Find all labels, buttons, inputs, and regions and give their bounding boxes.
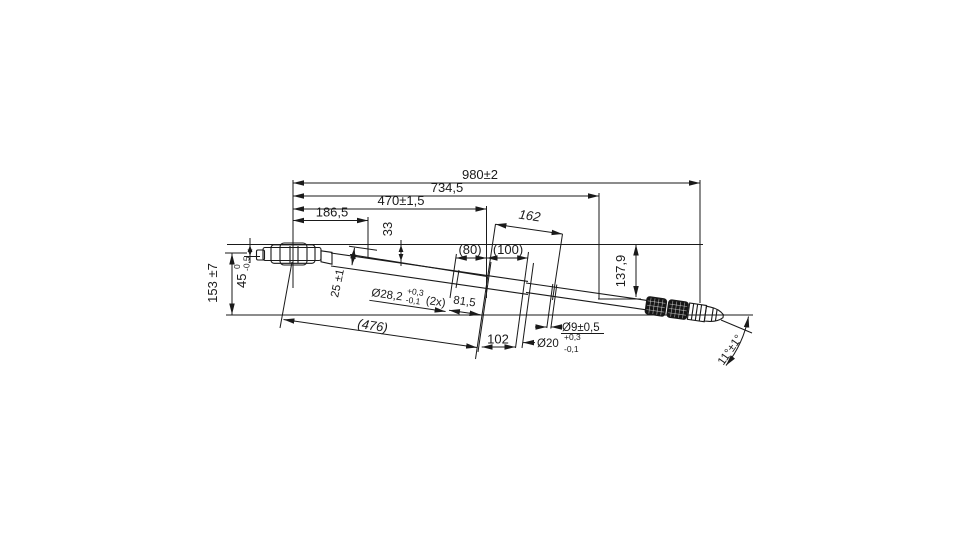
ext-groove1 <box>450 254 456 298</box>
dim-length-80: (80) <box>458 242 481 257</box>
dimline-81 <box>449 310 481 315</box>
dim-length-470: 470±1,5 <box>378 193 425 208</box>
dimension-80-100: (80) (100) <box>456 242 528 258</box>
dim-25: 25 ±1 <box>329 268 347 299</box>
dim-length-162: 162 <box>518 207 542 225</box>
dimension-dia28: Ø28,2 +0,3 -0,1 (2x) <box>369 281 448 312</box>
eyelet-neck <box>321 251 332 264</box>
dim-angle: 11°±1° <box>716 333 745 368</box>
dim-drop-137: 137,9 <box>613 255 628 288</box>
ext-dia20-b <box>522 263 534 348</box>
dimension-45: 45 0 -0,5 <box>232 238 252 288</box>
dim-dia20-tol-lower: -0,1 <box>564 344 579 354</box>
dimensions-top: 980±2 734,5 470±1,5 186,5 <box>293 167 700 221</box>
dimline-162 <box>496 224 563 234</box>
dim-dia28-tol-lower: -0,1 <box>405 295 421 307</box>
ext-dia20-a <box>516 252 529 348</box>
dim-dia20-tol-upper: +0,3 <box>564 332 581 342</box>
ext-162-right <box>553 234 563 300</box>
dim-45-tol-lower: -0,5 <box>242 256 252 271</box>
grip-collar-line-3 <box>699 305 701 321</box>
dimension-153: 153 ±7 <box>205 254 232 315</box>
grip-cone-line-2 <box>715 310 717 321</box>
dim-dia20-value: Ø20 <box>537 338 559 350</box>
grip-collar-line-1 <box>691 304 693 320</box>
dimension-162: 162 <box>496 207 563 234</box>
dim-length-186: 186,5 <box>316 205 349 220</box>
groove1-tick <box>456 270 459 288</box>
dim-length-102: 102 <box>487 332 509 347</box>
technical-drawing-page: 980±2 734,5 470±1,5 186,5 33 162 (80) (1… <box>0 0 960 540</box>
left-eyelet-fitting <box>257 243 333 265</box>
dim-total-length: 980±2 <box>462 167 498 182</box>
dim-offset-33: 33 <box>380 222 395 236</box>
technical-drawing: 980±2 734,5 470±1,5 186,5 33 162 (80) (1… <box>0 0 960 540</box>
rod-top-edge <box>526 283 647 300</box>
arrow-33-up <box>399 245 404 252</box>
right-grip-fitting <box>645 296 725 325</box>
ext-476-left <box>280 262 292 328</box>
dim-dia28-count: (2x) <box>425 295 446 310</box>
dimension-angle: 11°±1° <box>716 317 752 368</box>
tube-bottom-edge <box>331 266 528 294</box>
ext-stub-25 <box>349 246 377 250</box>
dimension-81: 81,5 <box>449 294 481 314</box>
dimension-137: 137,9 <box>613 245 636 298</box>
dimension-dia20: Ø20 +0,3 -0,1 <box>523 332 581 354</box>
dim-length-81: 81,5 <box>452 294 476 309</box>
dimension-102: 102 <box>482 332 516 348</box>
dim-height-153: 153 ±7 <box>205 263 220 303</box>
dim-length-734: 734,5 <box>431 180 464 195</box>
eyelet-body <box>263 248 321 261</box>
rod-bottom-edge <box>526 292 647 310</box>
dim-45-tol-upper: 0 <box>232 264 242 269</box>
dim-length-100: (100) <box>493 242 523 257</box>
dim-length-476: (476) <box>357 316 389 335</box>
arrow-45-down <box>248 250 253 257</box>
dim-45-value: 45 <box>234 274 249 288</box>
grip-collar-line-2 <box>695 304 697 320</box>
dimension-476: (476) <box>284 316 478 348</box>
arrow-33-down <box>399 254 404 261</box>
